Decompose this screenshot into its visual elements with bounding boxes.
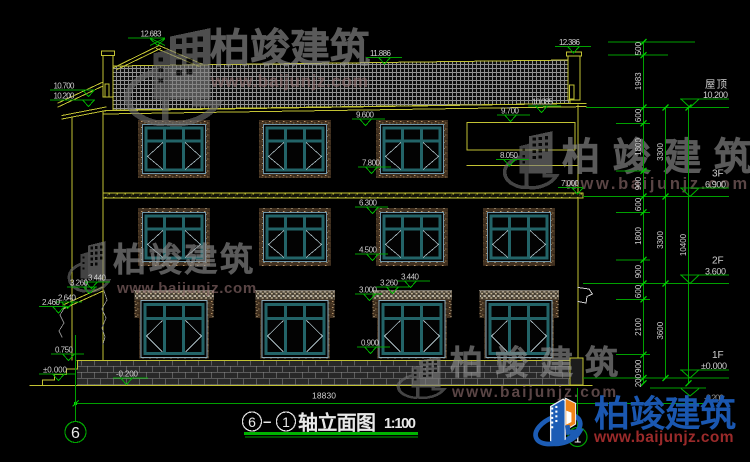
svg-text:3.260: 3.260 (70, 279, 89, 288)
svg-text:www.baijunjz.com: www.baijunjz.com (116, 280, 257, 297)
svg-text:10.085: 10.085 (532, 98, 554, 107)
svg-text:18830: 18830 (312, 391, 336, 401)
svg-text:0.900: 0.900 (361, 339, 380, 348)
svg-text:3F: 3F (712, 169, 724, 180)
svg-text:3.260: 3.260 (380, 279, 399, 288)
svg-text:600: 600 (634, 197, 643, 211)
svg-text:2F: 2F (712, 256, 724, 267)
svg-text:9.700: 9.700 (501, 107, 520, 116)
svg-text:±0.000: ±0.000 (43, 366, 68, 375)
svg-text:3.440: 3.440 (88, 274, 107, 283)
svg-text:900: 900 (634, 359, 643, 373)
svg-text:轴立面图: 轴立面图 (298, 411, 376, 435)
svg-text:3.000: 3.000 (359, 286, 378, 295)
svg-text:6.300: 6.300 (359, 199, 378, 208)
svg-text:屋顶: 屋顶 (705, 79, 728, 91)
svg-text:1F: 1F (712, 350, 724, 361)
svg-text:www.baijunjz.com: www.baijunjz.com (210, 71, 369, 91)
svg-text:600: 600 (634, 108, 643, 122)
svg-text:12.386: 12.386 (559, 38, 581, 47)
svg-text:10.700: 10.700 (54, 82, 76, 91)
svg-text:200: 200 (634, 373, 643, 387)
svg-text:3600: 3600 (656, 321, 665, 339)
svg-text:1: 1 (282, 414, 290, 430)
svg-text:6: 6 (71, 425, 80, 442)
svg-text:3300: 3300 (656, 143, 665, 161)
svg-text:3300: 3300 (656, 231, 665, 249)
svg-text:1983: 1983 (634, 72, 643, 90)
svg-text:10.200: 10.200 (54, 92, 76, 101)
svg-text:1800: 1800 (634, 227, 643, 245)
svg-text:3.440: 3.440 (401, 273, 420, 282)
svg-text:www.baijunjz.com: www.baijunjz.com (451, 384, 617, 401)
svg-text:www.baijunjz.com: www.baijunjz.com (593, 429, 734, 446)
svg-text:柏竣建筑: 柏竣建筑 (210, 27, 370, 71)
svg-text:6: 6 (248, 414, 256, 430)
svg-text:900: 900 (634, 176, 643, 190)
svg-text:7.800: 7.800 (362, 159, 381, 168)
svg-text:11.886: 11.886 (370, 49, 392, 58)
svg-text:900: 900 (634, 264, 643, 278)
svg-text:-0.200: -0.200 (116, 370, 139, 379)
svg-text:2.460: 2.460 (42, 298, 61, 307)
svg-text:500: 500 (634, 41, 643, 55)
svg-text:12.683: 12.683 (141, 30, 163, 39)
svg-text:1:100: 1:100 (384, 416, 416, 432)
svg-text:柏竣建筑: 柏竣建筑 (594, 393, 736, 434)
svg-text:2100: 2100 (634, 318, 643, 336)
svg-text:1800: 1800 (634, 138, 643, 156)
svg-text:600: 600 (634, 284, 643, 298)
svg-text:8.050: 8.050 (500, 151, 519, 160)
svg-text:9.600: 9.600 (356, 111, 375, 120)
svg-text:0.750: 0.750 (55, 346, 74, 355)
svg-text:–: – (263, 414, 271, 431)
svg-text:10400: 10400 (679, 233, 688, 256)
svg-text:2.640: 2.640 (58, 294, 77, 303)
svg-text:4.500: 4.500 (359, 246, 378, 255)
svg-text:7.000: 7.000 (561, 179, 580, 188)
